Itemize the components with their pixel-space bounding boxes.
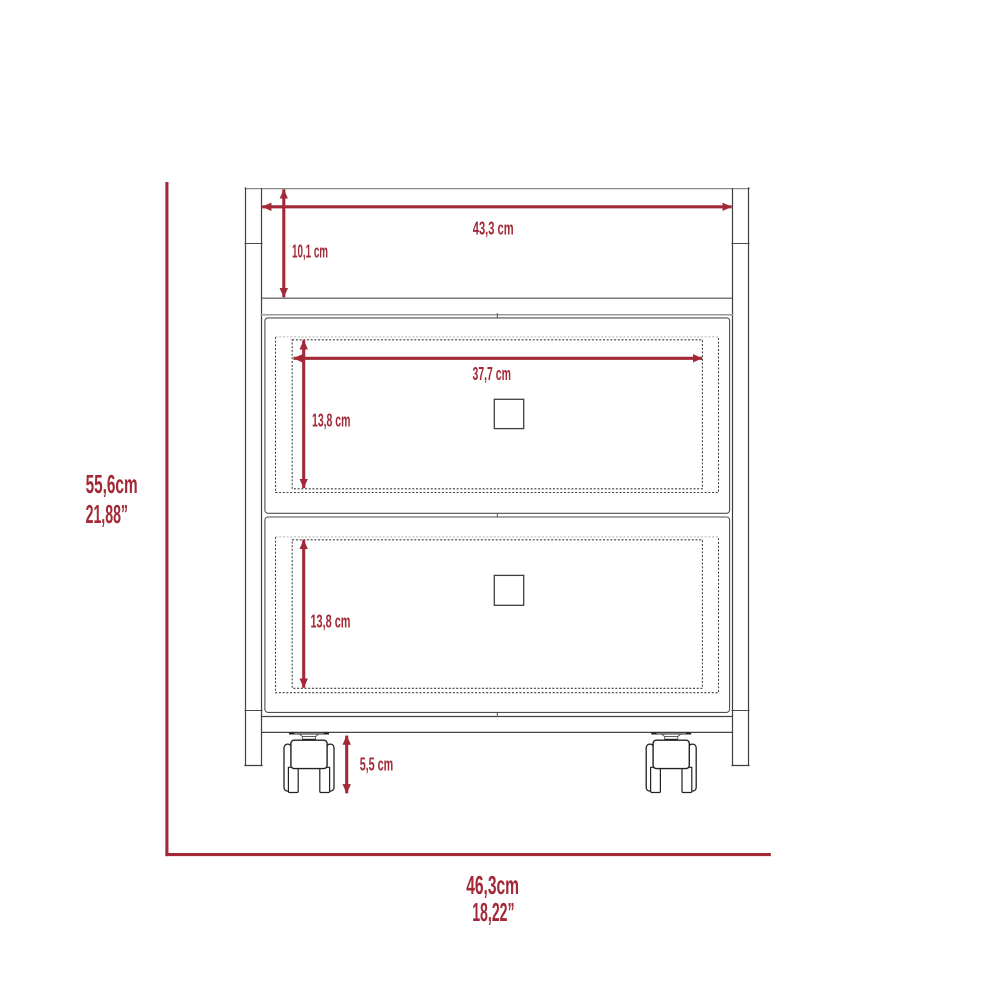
svg-text:5,5 cm: 5,5 cm [360,753,394,774]
svg-text:46,3cm: 46,3cm [466,870,519,900]
svg-text:43,3 cm: 43,3 cm [473,217,514,238]
svg-text:13,8 cm: 13,8 cm [312,409,350,430]
svg-text:10,1 cm: 10,1 cm [292,241,328,262]
svg-text:55,6cm: 55,6cm [86,469,138,499]
svg-text:21,88”: 21,88” [86,499,128,529]
svg-text:18,22”: 18,22” [472,897,514,927]
svg-text:37,7 cm: 37,7 cm [473,363,511,384]
svg-text:13,8 cm: 13,8 cm [311,611,351,632]
